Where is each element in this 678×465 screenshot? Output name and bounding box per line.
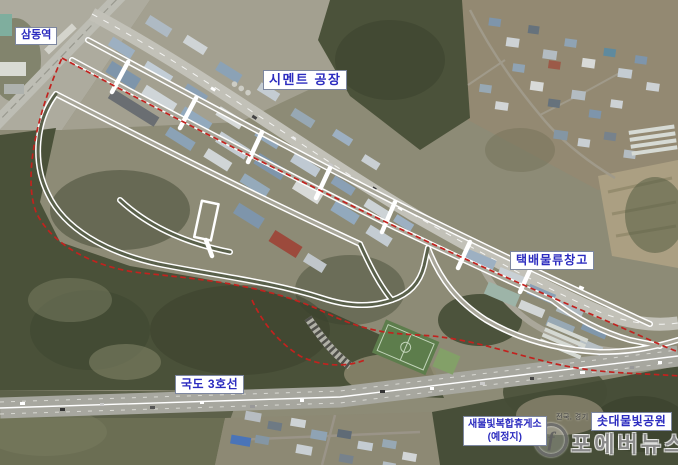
label-parcel-warehouse: 택배물류창고 bbox=[510, 251, 594, 270]
label-sotdae-mulbit-park: 솟대물빛공원 bbox=[591, 412, 672, 431]
label-samdong-station-text: 삼동역 bbox=[21, 29, 51, 41]
label-samdong-station: 삼동역 bbox=[15, 27, 57, 45]
label-rest-area: 새물빛복합휴게소 (예정지) bbox=[463, 416, 547, 446]
label-national-route-3-text: 국도 3호선 bbox=[181, 377, 238, 391]
label-cement-factory-text: 시멘트 공장 bbox=[269, 72, 341, 87]
label-rest-area-note: (예정지) bbox=[468, 431, 542, 444]
label-parcel-warehouse-text: 택배물류창고 bbox=[516, 253, 588, 267]
watermark-region-text: 전국, 경기 bbox=[556, 412, 589, 422]
label-cement-factory: 시멘트 공장 bbox=[263, 70, 347, 90]
watermark-brand-text: 포에버뉴스 bbox=[571, 427, 678, 459]
aerial-map-image: 전국, 경기 f 포에버뉴스 삼동역 시멘트 공장 택배물류창고 국도 3호선 … bbox=[0, 0, 678, 465]
label-national-route-3: 국도 3호선 bbox=[175, 375, 244, 394]
label-rest-area-name: 새물빛복합휴게소 bbox=[468, 418, 542, 431]
label-sotdae-mulbit-park-text: 솟대물빛공원 bbox=[597, 414, 666, 428]
